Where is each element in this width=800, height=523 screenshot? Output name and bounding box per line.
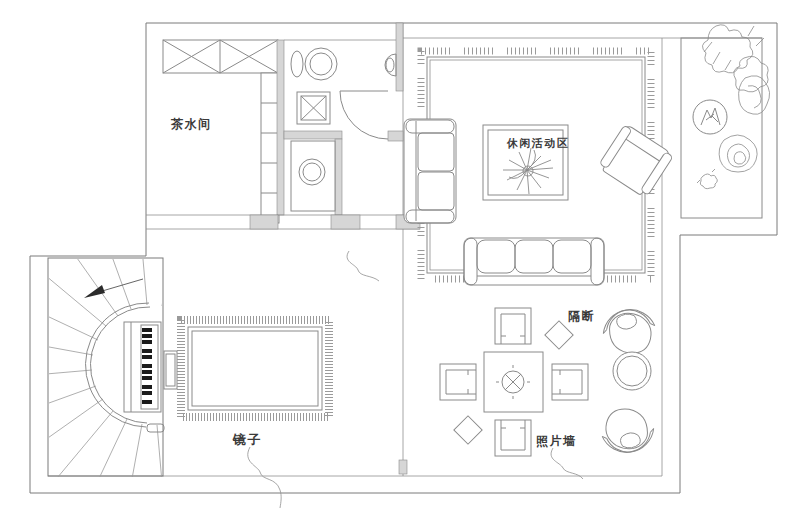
wall-segment <box>335 139 342 215</box>
chair-icon <box>552 364 588 400</box>
tea-room: 茶水间 <box>163 40 279 223</box>
mirror-icon <box>181 320 329 417</box>
tea-table-area: 隔断 照片墙 <box>399 305 660 479</box>
plant-icon <box>503 148 553 194</box>
partition-label: 隔断 <box>568 309 595 323</box>
photo-wall-label: 照片墙 <box>536 434 577 448</box>
round-chair-icon <box>599 305 659 359</box>
balcony <box>681 25 770 218</box>
planter-icon <box>693 100 727 134</box>
sink-icon <box>297 92 330 124</box>
wall-segment <box>277 40 284 215</box>
chair-icon <box>495 308 531 344</box>
chair-icon <box>440 364 476 400</box>
shelf-column-icon <box>261 73 279 223</box>
wall-segment <box>284 131 342 139</box>
wall-pillar <box>250 215 278 229</box>
armchair-icon <box>597 123 674 198</box>
wall-segment <box>396 23 403 91</box>
piano-bench-icon <box>164 351 177 389</box>
round-side-table-icon <box>613 352 651 390</box>
ornament-icon <box>697 169 717 189</box>
door-swing-icon <box>340 91 388 139</box>
floor-plan: 茶水间 <box>0 0 800 523</box>
foliage-icon <box>702 25 768 92</box>
tea-table-icon <box>484 352 543 412</box>
x-cabinet-icon <box>163 40 278 73</box>
wall-basin-icon <box>385 54 396 76</box>
wall-pillar <box>331 215 360 229</box>
round-chair-icon <box>597 403 657 457</box>
mirror-label: 镜子 <box>232 432 262 447</box>
photo-wall-leader <box>551 448 583 479</box>
leisure-area: 休闲活动区 <box>404 51 674 285</box>
handrail-end <box>147 424 164 432</box>
diamond-decor-icon <box>545 321 573 349</box>
wall-pillar <box>399 460 407 474</box>
rock-icon <box>739 76 770 115</box>
wall-segment <box>388 131 403 141</box>
tea-room-label: 茶水间 <box>170 117 212 131</box>
leader-squiggle <box>347 251 379 281</box>
stone-icon <box>719 135 757 172</box>
leisure-area-label: 休闲活动区 <box>506 137 570 149</box>
balcony-floor <box>681 38 762 218</box>
toilet-icon <box>291 48 337 80</box>
chair-icon <box>495 420 531 456</box>
loveseat-icon <box>404 119 456 223</box>
washing-machine-icon <box>291 141 335 211</box>
floor-plan-drawing: 茶水间 <box>0 0 800 523</box>
sofa-icon <box>464 238 604 285</box>
diamond-decor-icon <box>454 416 482 444</box>
direction-arrow-icon <box>84 279 143 298</box>
mirror-leader <box>248 447 281 508</box>
piano-icon <box>124 322 161 412</box>
